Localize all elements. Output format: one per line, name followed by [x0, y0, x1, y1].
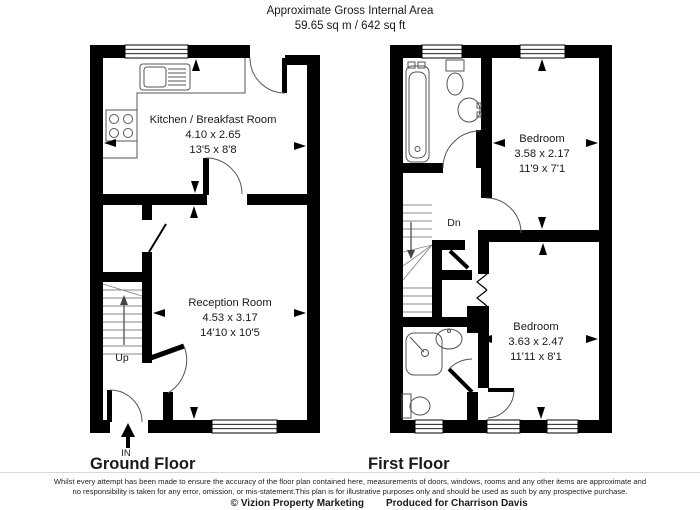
reception-room-imperial: 14'10 x 10'5 [200, 327, 260, 339]
rear-door-leaf [282, 58, 287, 93]
toilet-shower-room [402, 394, 430, 418]
bedroom2-door-arc [488, 390, 514, 418]
toilet-bathroom [446, 60, 464, 95]
kitchen-room-metric: 4.10 x 2.65 [185, 129, 240, 141]
stairs-up-label: Up [115, 352, 129, 364]
up-arrow-icon [120, 295, 128, 305]
bedroom1-name: Bedroom [519, 133, 564, 145]
ground-stairs [103, 284, 142, 354]
bedroom2-imperial: 11'11 x 8'1 [510, 351, 562, 363]
basin-shower-room [436, 329, 462, 349]
bedroom1-metric: 3.58 x 2.17 [514, 148, 569, 160]
bedroom2-metric: 3.63 x 2.47 [508, 336, 563, 348]
reception-room-metric: 4.53 x 3.17 [202, 312, 257, 324]
stairs-dn-label: Dn [447, 217, 461, 229]
bathroom-door-leaf [476, 130, 481, 168]
kitchen-door-arc [206, 158, 242, 194]
bedroom1-imperial: 11'9 x 7'1 [519, 163, 565, 175]
copyright-credit: © Vizion Property Marketing [231, 498, 364, 509]
hob [106, 110, 137, 141]
first-window-bottom-3 [547, 420, 578, 433]
ground-window-bottom [212, 420, 277, 433]
ground-doors [107, 58, 287, 422]
rear-door-arc [250, 58, 285, 93]
basin-bathroom [458, 98, 481, 122]
front-door-arc [110, 390, 142, 422]
first-window-bottom-2 [487, 420, 520, 433]
first-window-top-2 [520, 45, 565, 58]
bedroom1-door-arc [486, 198, 521, 233]
ground-window-top [125, 45, 188, 58]
kitchen-room-imperial: 13'5 x 8'8 [189, 144, 236, 156]
wardrobe-bifold-doors [477, 274, 487, 306]
floorplan-page: { "header": { "title": "Approximate Gros… [0, 0, 700, 510]
first-floor-plan: Bedroom 3.58 x 2.17 11'9 x 7'1 Bedroom 3… [368, 45, 612, 473]
reception-room-name: Reception Room [188, 297, 271, 309]
first-window-top-1 [422, 45, 462, 58]
kitchen-counter [103, 58, 245, 158]
ground-floor-label: Ground Floor [90, 455, 196, 473]
ground-walls [90, 45, 320, 433]
shower-room-door-leaf [449, 369, 472, 392]
floorplan-canvas: Approximate Gross Internal Area 59.65 sq… [0, 0, 700, 510]
produced-for-credit: Produced for Charrison Davis [386, 498, 528, 509]
bathtub [406, 62, 429, 162]
landing-cupboard-door [450, 251, 468, 268]
front-door-leaf [107, 390, 112, 422]
disclaimer-line1: Whilst every attempt has been made to en… [54, 477, 646, 486]
bedroom2-name: Bedroom [513, 321, 558, 333]
page-title: Approximate Gross Internal Area [267, 5, 434, 17]
kitchen-door-leaf [203, 158, 209, 195]
shower [406, 333, 442, 375]
bathroom-door-arc [443, 131, 480, 168]
reception-door-leaf [148, 346, 184, 359]
kitchen-room-name: Kitchen / Breakfast Room [150, 114, 277, 126]
page-area: 59.65 sq m / 642 sq ft [295, 20, 406, 32]
first-stairs [403, 205, 432, 312]
shower-room-door-arc [449, 359, 472, 369]
ground-floor-plan: Kitchen / Breakfast Room 4.10 x 2.65 13'… [90, 45, 320, 473]
first-floor-label: First Floor [368, 455, 450, 473]
first-window-bottom-1 [415, 420, 443, 433]
entrance-in-arrow-icon [121, 423, 135, 448]
understairs-cupboard-door [149, 224, 166, 252]
disclaimer-line2: no responsibility is taken for any error… [72, 487, 627, 496]
